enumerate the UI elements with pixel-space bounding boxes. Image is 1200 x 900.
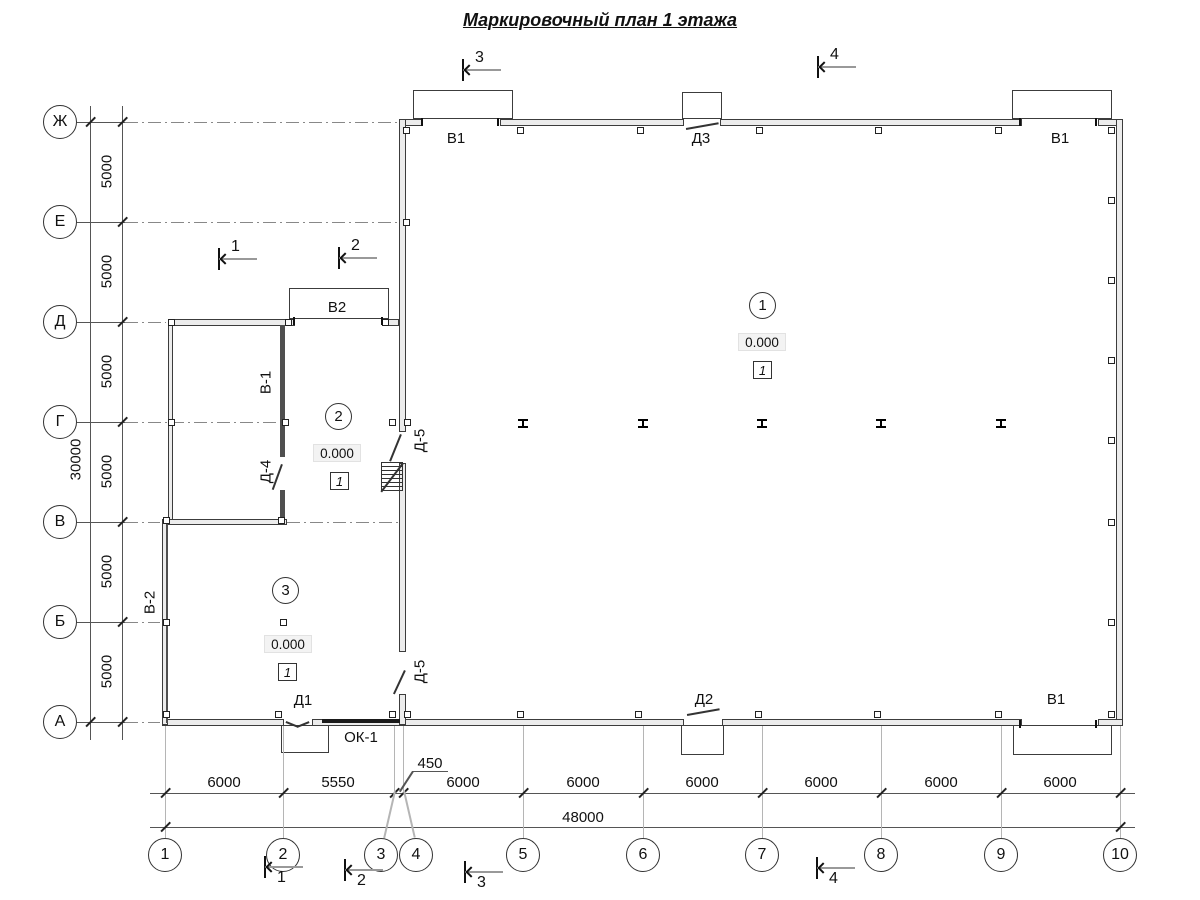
column-mark — [1108, 711, 1115, 718]
opening-jamb-mark — [421, 118, 423, 126]
axis-line-vertical — [762, 726, 763, 838]
opening-jamb-mark — [497, 118, 499, 126]
porch-gate-bottom-right — [1013, 725, 1112, 755]
wall-top — [500, 119, 684, 126]
column-mark — [1108, 357, 1115, 364]
section-arrow-icon — [817, 862, 828, 873]
column-mark — [163, 517, 170, 524]
section-number: 1 — [277, 869, 286, 887]
room-elevation-1: 0.000 — [738, 333, 786, 351]
room-number-3: 3 — [272, 577, 299, 604]
column-mark — [282, 419, 289, 426]
axis-dash-line — [287, 522, 398, 523]
room-elevation-3: 0.000 — [264, 635, 312, 653]
section-arrow-icon — [339, 252, 350, 263]
wall-inner — [399, 119, 406, 432]
column-mark — [995, 127, 1002, 134]
section-arrow-icon — [345, 864, 356, 875]
steel-column-mark — [518, 419, 528, 428]
axis-line-vertical — [1001, 726, 1002, 838]
section-arrow-icon — [463, 64, 474, 75]
column-mark — [163, 711, 170, 718]
porch-gate-top-right — [1012, 90, 1112, 119]
column-mark — [389, 419, 396, 426]
column-mark — [1108, 127, 1115, 134]
axis-row-b: Б — [43, 605, 77, 639]
axis-dash-line — [125, 322, 166, 323]
dim-450-leader-shelf — [412, 771, 448, 772]
section-number: 3 — [475, 49, 484, 67]
label-window-v-1: В-1 — [258, 365, 275, 401]
porch-gate-top-left — [413, 90, 513, 119]
column-mark — [874, 711, 881, 718]
plan-line — [687, 708, 720, 715]
column-mark — [637, 127, 644, 134]
axis-col-5: 5 — [506, 838, 540, 872]
column-mark — [1108, 437, 1115, 444]
column-mark — [285, 319, 292, 326]
column-mark — [1108, 519, 1115, 526]
room-number-1: 1 — [749, 292, 776, 319]
axis-dash-line — [125, 222, 398, 223]
axis-col-8: 8 — [864, 838, 898, 872]
axis-col-3: 3 — [364, 838, 398, 872]
axis-col-7: 7 — [745, 838, 779, 872]
column-mark — [404, 711, 411, 718]
axis-leader-line — [77, 622, 125, 623]
room-finish-3: 1 — [278, 663, 297, 681]
column-mark — [168, 419, 175, 426]
wall-right — [1116, 119, 1123, 725]
label-window-ok1: ОК-1 — [339, 729, 383, 746]
axis-line-vertical — [1120, 726, 1121, 838]
axis-dash-line — [125, 122, 398, 123]
label-gate-v1-bottom: В1 — [1036, 691, 1076, 708]
axis-col-9: 9 — [984, 838, 1018, 872]
plan-line — [686, 122, 719, 129]
label-door-d1: Д1 — [283, 692, 323, 709]
label-window-v-2: В-2 — [142, 585, 159, 621]
floor-plan-drawing: Маркировочный план 1 этажа 5000 5000 500… — [0, 0, 1200, 900]
column-mark — [517, 127, 524, 134]
section-number: 3 — [477, 874, 486, 892]
column-mark — [635, 711, 642, 718]
wall-glazed-v1 — [280, 325, 285, 457]
label-gate-v2-annex: В2 — [317, 299, 357, 316]
dim-5000: 5000 — [99, 250, 116, 294]
dim-6000: 6000 — [801, 774, 841, 791]
axis-row-v: В — [43, 505, 77, 539]
axis-row-d: Д — [43, 305, 77, 339]
section-arrow-icon — [465, 866, 476, 877]
label-gate-v1-top-left: В1 — [436, 130, 476, 147]
plan-line — [403, 791, 415, 838]
axis-dash-line — [125, 422, 279, 423]
plan-line — [383, 791, 395, 838]
porch-door-top — [682, 92, 722, 119]
axis-leader-line — [77, 222, 125, 223]
dim-line-vertical-total — [90, 106, 91, 740]
room-finish-1: 1 — [753, 361, 772, 379]
axis-row-a: А — [43, 705, 77, 739]
dim-5000: 5000 — [99, 550, 116, 594]
dim-450: 450 — [412, 755, 448, 772]
section-arrow-icon — [818, 61, 829, 72]
section-number: 2 — [351, 237, 360, 255]
opening-jamb-mark — [1019, 118, 1021, 126]
room-finish-2: 1 — [330, 472, 349, 490]
axis-col-1: 1 — [148, 838, 182, 872]
room-number-2: 2 — [325, 403, 352, 430]
axis-line-vertical — [165, 726, 166, 838]
wall-inner — [399, 463, 406, 652]
dim-6000: 6000 — [921, 774, 961, 791]
dim-6000: 6000 — [204, 774, 244, 791]
axis-row-e: Е — [43, 205, 77, 239]
dim-5000: 5000 — [99, 650, 116, 694]
steel-column-mark — [757, 419, 767, 428]
section-arrow-icon — [219, 253, 230, 264]
axis-line-vertical — [523, 726, 524, 838]
column-mark — [403, 219, 410, 226]
axis-row-zh: Ж — [43, 105, 77, 139]
column-mark — [278, 517, 285, 524]
column-mark — [756, 127, 763, 134]
wall-top — [720, 119, 1022, 126]
label-door-d2: Д2 — [684, 691, 724, 708]
steel-column-mark — [876, 419, 886, 428]
dim-5000: 5000 — [99, 350, 116, 394]
dim-6000: 6000 — [443, 774, 483, 791]
column-mark — [404, 419, 411, 426]
label-door-d3: Д3 — [681, 130, 721, 147]
plan-line — [393, 670, 405, 694]
opening-jamb-mark — [1095, 720, 1097, 728]
porch-door-d2 — [681, 725, 724, 755]
label-gate-v1-top-right: В1 — [1040, 130, 1080, 147]
dim-5000: 5000 — [99, 450, 116, 494]
window-ok1-band — [322, 719, 400, 723]
column-mark — [275, 711, 282, 718]
wall-inner — [399, 694, 406, 725]
wall-glazed-v1 — [280, 490, 285, 519]
column-mark — [389, 711, 396, 718]
opening-jamb-mark — [1019, 720, 1021, 728]
wall-annex-top — [168, 319, 295, 326]
steel-column-mark — [996, 419, 1006, 428]
column-mark — [517, 711, 524, 718]
drawing-title: Маркировочный план 1 этажа — [463, 10, 737, 31]
section-number: 2 — [357, 872, 366, 890]
label-door-d5-upper: Д-5 — [412, 423, 429, 459]
porch-door-d1 — [281, 725, 329, 753]
opening-jamb-mark — [293, 317, 295, 325]
axis-line-vertical — [643, 726, 644, 838]
axis-dash-line — [125, 722, 160, 723]
dim-6000: 6000 — [563, 774, 603, 791]
axis-col-4: 4 — [399, 838, 433, 872]
column-mark — [1108, 619, 1115, 626]
axis-leader-line — [77, 322, 125, 323]
axis-dash-line — [125, 522, 160, 523]
axis-col-6: 6 — [626, 838, 660, 872]
wall-bottom — [162, 719, 284, 726]
axis-row-g: Г — [43, 405, 77, 439]
column-mark — [403, 127, 410, 134]
column-mark — [1108, 197, 1115, 204]
steel-column-mark — [638, 419, 648, 428]
column-mark — [280, 619, 287, 626]
label-door-d5-lower: Д-5 — [412, 654, 429, 690]
wall-annex-mid — [162, 519, 287, 525]
axis-dash-line — [125, 622, 160, 623]
axis-line-vertical — [881, 726, 882, 838]
dim-48000: 48000 — [557, 809, 609, 826]
axis-col-10: 10 — [1103, 838, 1137, 872]
axis-line-vertical — [283, 726, 284, 838]
dim-5000: 5000 — [99, 150, 116, 194]
column-mark — [875, 127, 882, 134]
dim-5550: 5550 — [318, 774, 358, 791]
label-door-d4: Д-4 — [258, 454, 275, 490]
plan-line — [389, 434, 401, 461]
opening-jamb-mark — [1095, 118, 1097, 126]
axis-line-vertical — [394, 726, 395, 791]
opening-jamb-mark — [381, 317, 383, 325]
axis-leader-line — [77, 722, 125, 723]
column-mark — [168, 319, 175, 326]
column-mark — [755, 711, 762, 718]
room-elevation-2: 0.000 — [313, 444, 361, 462]
column-mark — [163, 619, 170, 626]
axis-leader-line — [77, 122, 125, 123]
axis-leader-line — [77, 422, 125, 423]
section-number: 1 — [231, 238, 240, 256]
section-number: 4 — [830, 46, 839, 64]
column-mark — [995, 711, 1002, 718]
dim-6000: 6000 — [1040, 774, 1080, 791]
dim-30000: 30000 — [68, 432, 85, 488]
section-number: 4 — [829, 870, 838, 888]
column-mark — [1108, 277, 1115, 284]
axis-leader-line — [77, 522, 125, 523]
wall-bottom — [722, 719, 1022, 726]
dim-6000: 6000 — [682, 774, 722, 791]
